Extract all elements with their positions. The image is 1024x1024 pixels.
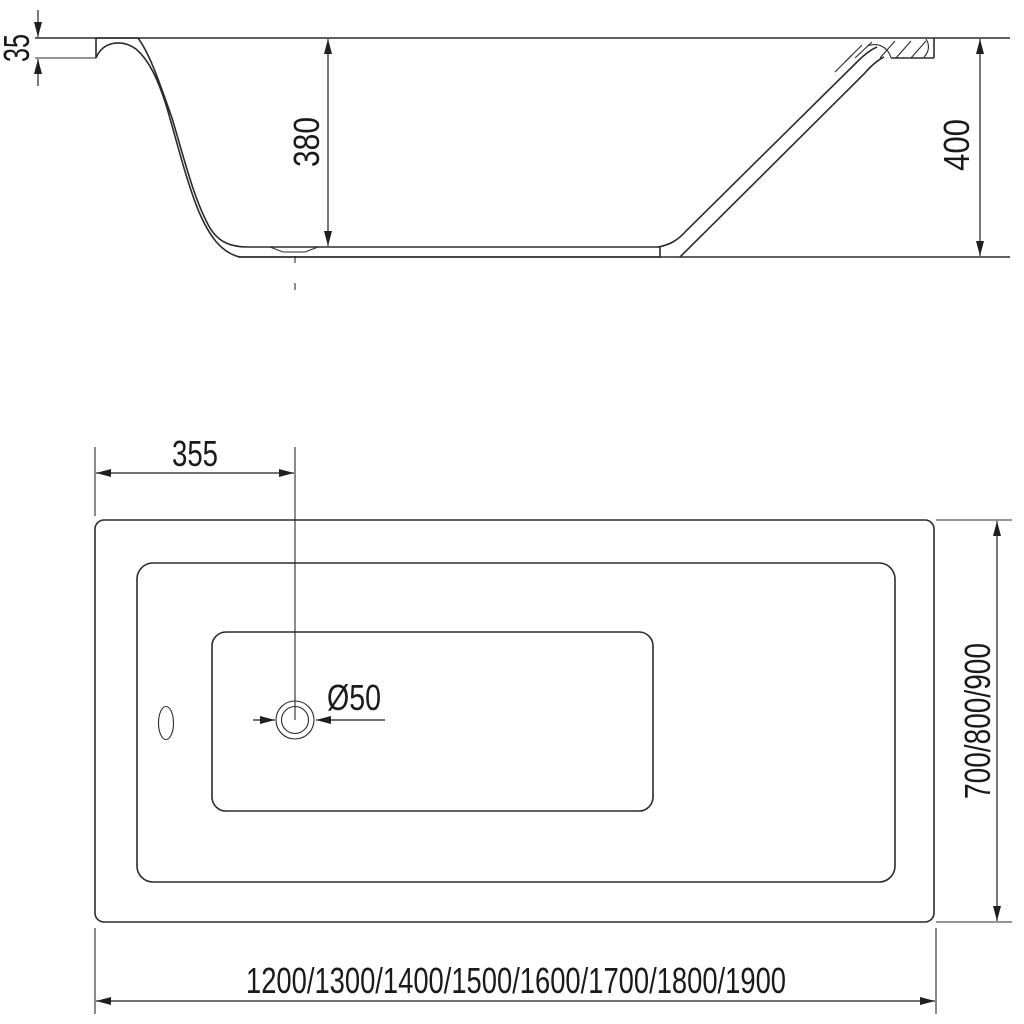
- tub-outer-edge: [95, 520, 934, 922]
- dim-inner-depth-label: 380: [286, 117, 327, 167]
- dim-overall-height-label: 400: [936, 119, 977, 171]
- overflow-hole: [159, 707, 174, 740]
- dim-rim-thickness: 35: [0, 10, 38, 86]
- dim-drain-diameter: Ø50: [253, 677, 385, 720]
- right-wall-outline: [658, 47, 884, 257]
- dim-length: 1200/1300/1400/1500/1600/1700/1800/1900: [95, 928, 936, 1014]
- right-rim-section: [835, 38, 934, 72]
- drain-diameter-label: Ø50: [327, 677, 381, 718]
- dim-inner-depth: 380: [286, 39, 328, 246]
- dim-drain-offset: 355: [95, 433, 294, 516]
- technical-drawing-canvas: 35 380 400 355: [0, 0, 1024, 1024]
- dim-rim-thickness-label: 35: [0, 34, 37, 62]
- dim-drain-offset-label: 355: [172, 433, 218, 474]
- tub-rim-inner-edge: [137, 563, 895, 882]
- tub-basin-edge: [212, 632, 653, 811]
- dim-length-label: 1200/1300/1400/1500/1600/1700/1800/1900: [246, 960, 786, 1001]
- bathtub-technical-drawing: 35 380 400 355: [0, 0, 1024, 1024]
- side-view: 35 380 400: [0, 10, 1010, 290]
- side-view-shell: [96, 38, 660, 257]
- dim-width: 700/800/900: [936, 520, 1012, 922]
- dim-overall-height: 400: [936, 39, 980, 256]
- plan-view: 355 Ø50 700/800/900 1200/1300/1400/1500/…: [95, 433, 1012, 1014]
- dim-width-label: 700/800/900: [957, 643, 998, 799]
